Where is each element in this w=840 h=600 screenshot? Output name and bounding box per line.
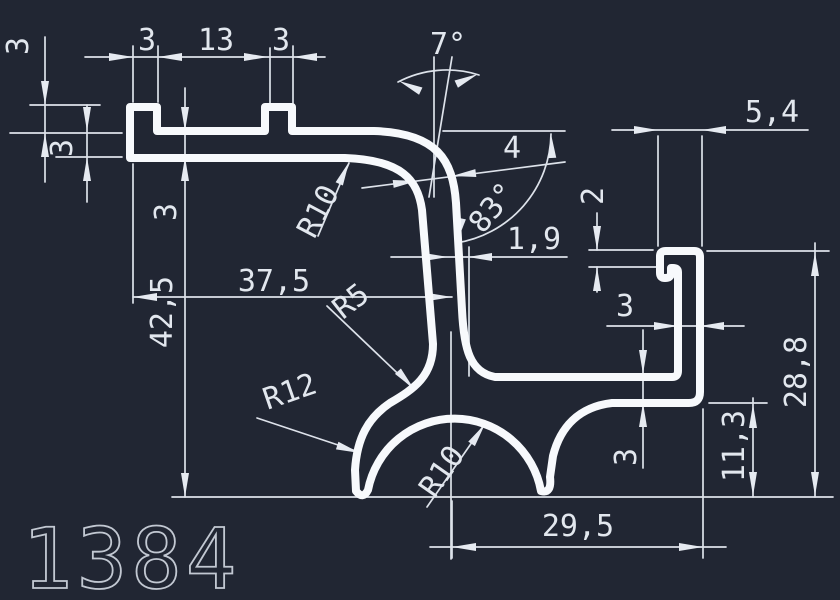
dim-arrow [634,126,658,134]
dim-web-thickness: 4 [362,131,565,188]
dim-arrow [455,70,480,87]
dim-arrow [593,267,601,291]
dim-label-web-thickness: 4 [503,131,521,166]
dim-label-hook-width: 5,4 [745,95,799,130]
dim-arrow [109,53,133,61]
radius-junction-fillet: R5 [326,277,417,392]
dim-label-bar-thickness-left: 3 [45,139,80,157]
dim-arrow [811,252,819,276]
radius-bend-top: R10 [290,160,352,243]
dim-label-rib-left-width: 3 [138,23,156,58]
dim-label-right-overall-height: 28,8 [779,336,814,408]
dim-label-overall-height: 42,5 [145,276,180,348]
dim-arrow [181,473,189,497]
dim-width-to-axis: 37,5 [133,164,452,303]
dim-label-bottom-width: 29,5 [542,509,614,544]
dim-label-hook-lip: 2 [576,187,611,205]
dim-arrow [468,253,492,261]
profile-outline [130,107,700,495]
dim-label-width-to-axis: 37,5 [238,264,310,299]
cad-drawing-canvas: 3 13 3 3 3 3 42,5 37,5 [0,0,840,600]
dim-arrow [83,157,91,181]
dim-arrow [452,543,476,551]
dim-arrow [41,81,49,105]
dim-arrow [83,107,91,131]
profile-drawing: 3 13 3 3 3 3 42,5 37,5 [0,0,840,600]
part-number: 1384 [22,510,240,600]
dim-hook-width: 5,4 [612,95,808,246]
dim-label-web-tilt-angle: 7° [430,27,466,62]
dim-flange-height: 3 [1,37,49,182]
dim-arrow [679,543,703,551]
dim-hook-lip: 2 [576,187,656,292]
dim-overall-height: 3 42,5 [145,88,189,497]
dim-label-lower-wall-thickness: 1,9 [507,222,561,257]
dim-label-leg-radius: R12 [259,367,322,418]
dim-label-right-wall: 3 [616,289,634,324]
dim-label-shelf-bottom-height: 11,3 [717,410,752,482]
dim-label-arch-radius: R10 [412,439,472,503]
dim-label-junction-fillet: R5 [326,277,376,327]
dim-bar-thickness-left: 3 [45,105,91,202]
dim-arrow [811,472,819,496]
dim-label-bar-thickness-right: 3 [149,203,184,221]
dim-arrow [244,53,268,61]
radius-leg-outer: R12 [257,367,361,457]
dim-arrow [158,53,182,61]
dim-label-rib-spacing: 13 [198,23,234,58]
dim-top-ribs: 3 13 3 [85,23,325,103]
dim-arrow [293,53,317,61]
dim-label-shelf-thickness: 3 [609,448,644,466]
dim-arrow [639,350,647,374]
dim-arrow [702,126,726,134]
dim-arrow [336,160,353,185]
dim-label-rib-right-width: 3 [272,23,290,58]
dim-shelf-bottom-height: 11,3 [709,398,767,497]
dim-bottom-width: 29,5 [430,409,726,558]
dim-lower-wall-thickness: 1,9 [391,222,567,376]
dim-arrow [593,226,601,250]
dim-label-flange-height: 3 [1,37,36,55]
